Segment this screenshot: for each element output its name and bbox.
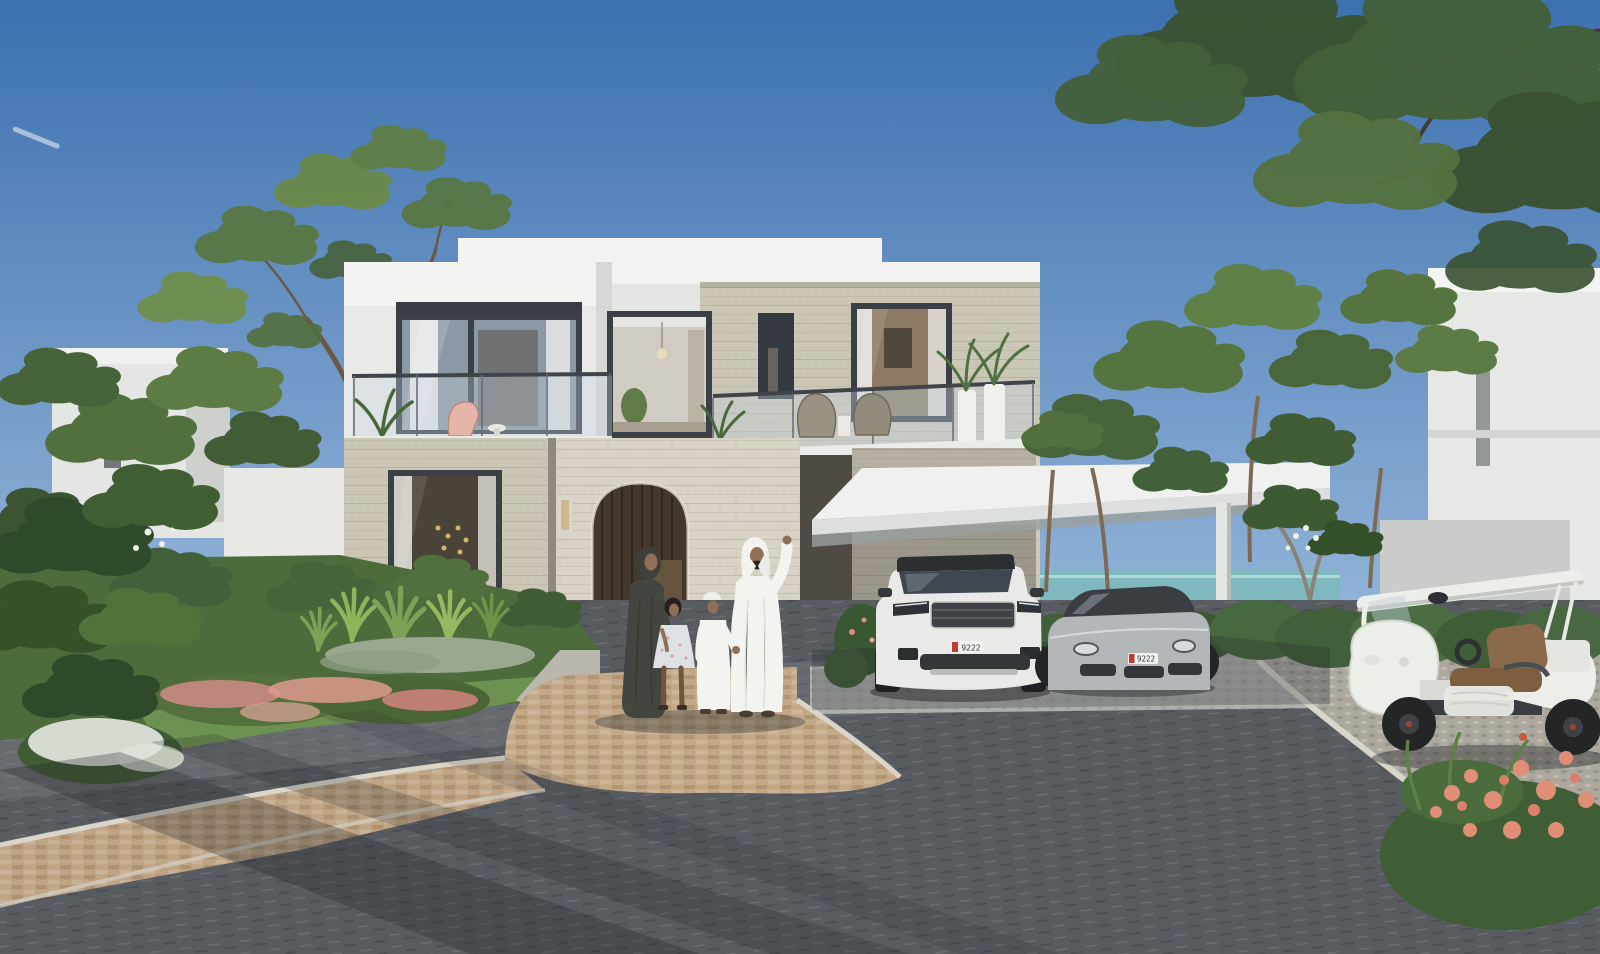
sedan-license-plate: 9222 (1128, 653, 1158, 664)
suv-bumper (920, 654, 1030, 670)
suv-range-rover: 9222 (870, 554, 1050, 702)
small-red-flower (1519, 733, 1527, 741)
sedan-headlight-left (1074, 643, 1098, 655)
center-window (607, 311, 712, 438)
architectural-render: 9222 9222 (0, 0, 1600, 954)
villa-scene: 9222 9222 (0, 0, 1600, 954)
suv-roof (897, 554, 1015, 572)
narrow-window (758, 313, 794, 399)
wall-sconce (558, 496, 572, 534)
cart-rear-wheel (1545, 699, 1600, 755)
sedan-headlight-right (1173, 640, 1195, 652)
svg-text:9222: 9222 (1137, 655, 1155, 664)
right-wing-fascia (612, 262, 1040, 284)
suv-license-plate: 9222 (951, 641, 983, 653)
svg-text:9222: 9222 (961, 644, 980, 653)
suv-grille (931, 602, 1015, 628)
balcony-table (838, 416, 850, 436)
